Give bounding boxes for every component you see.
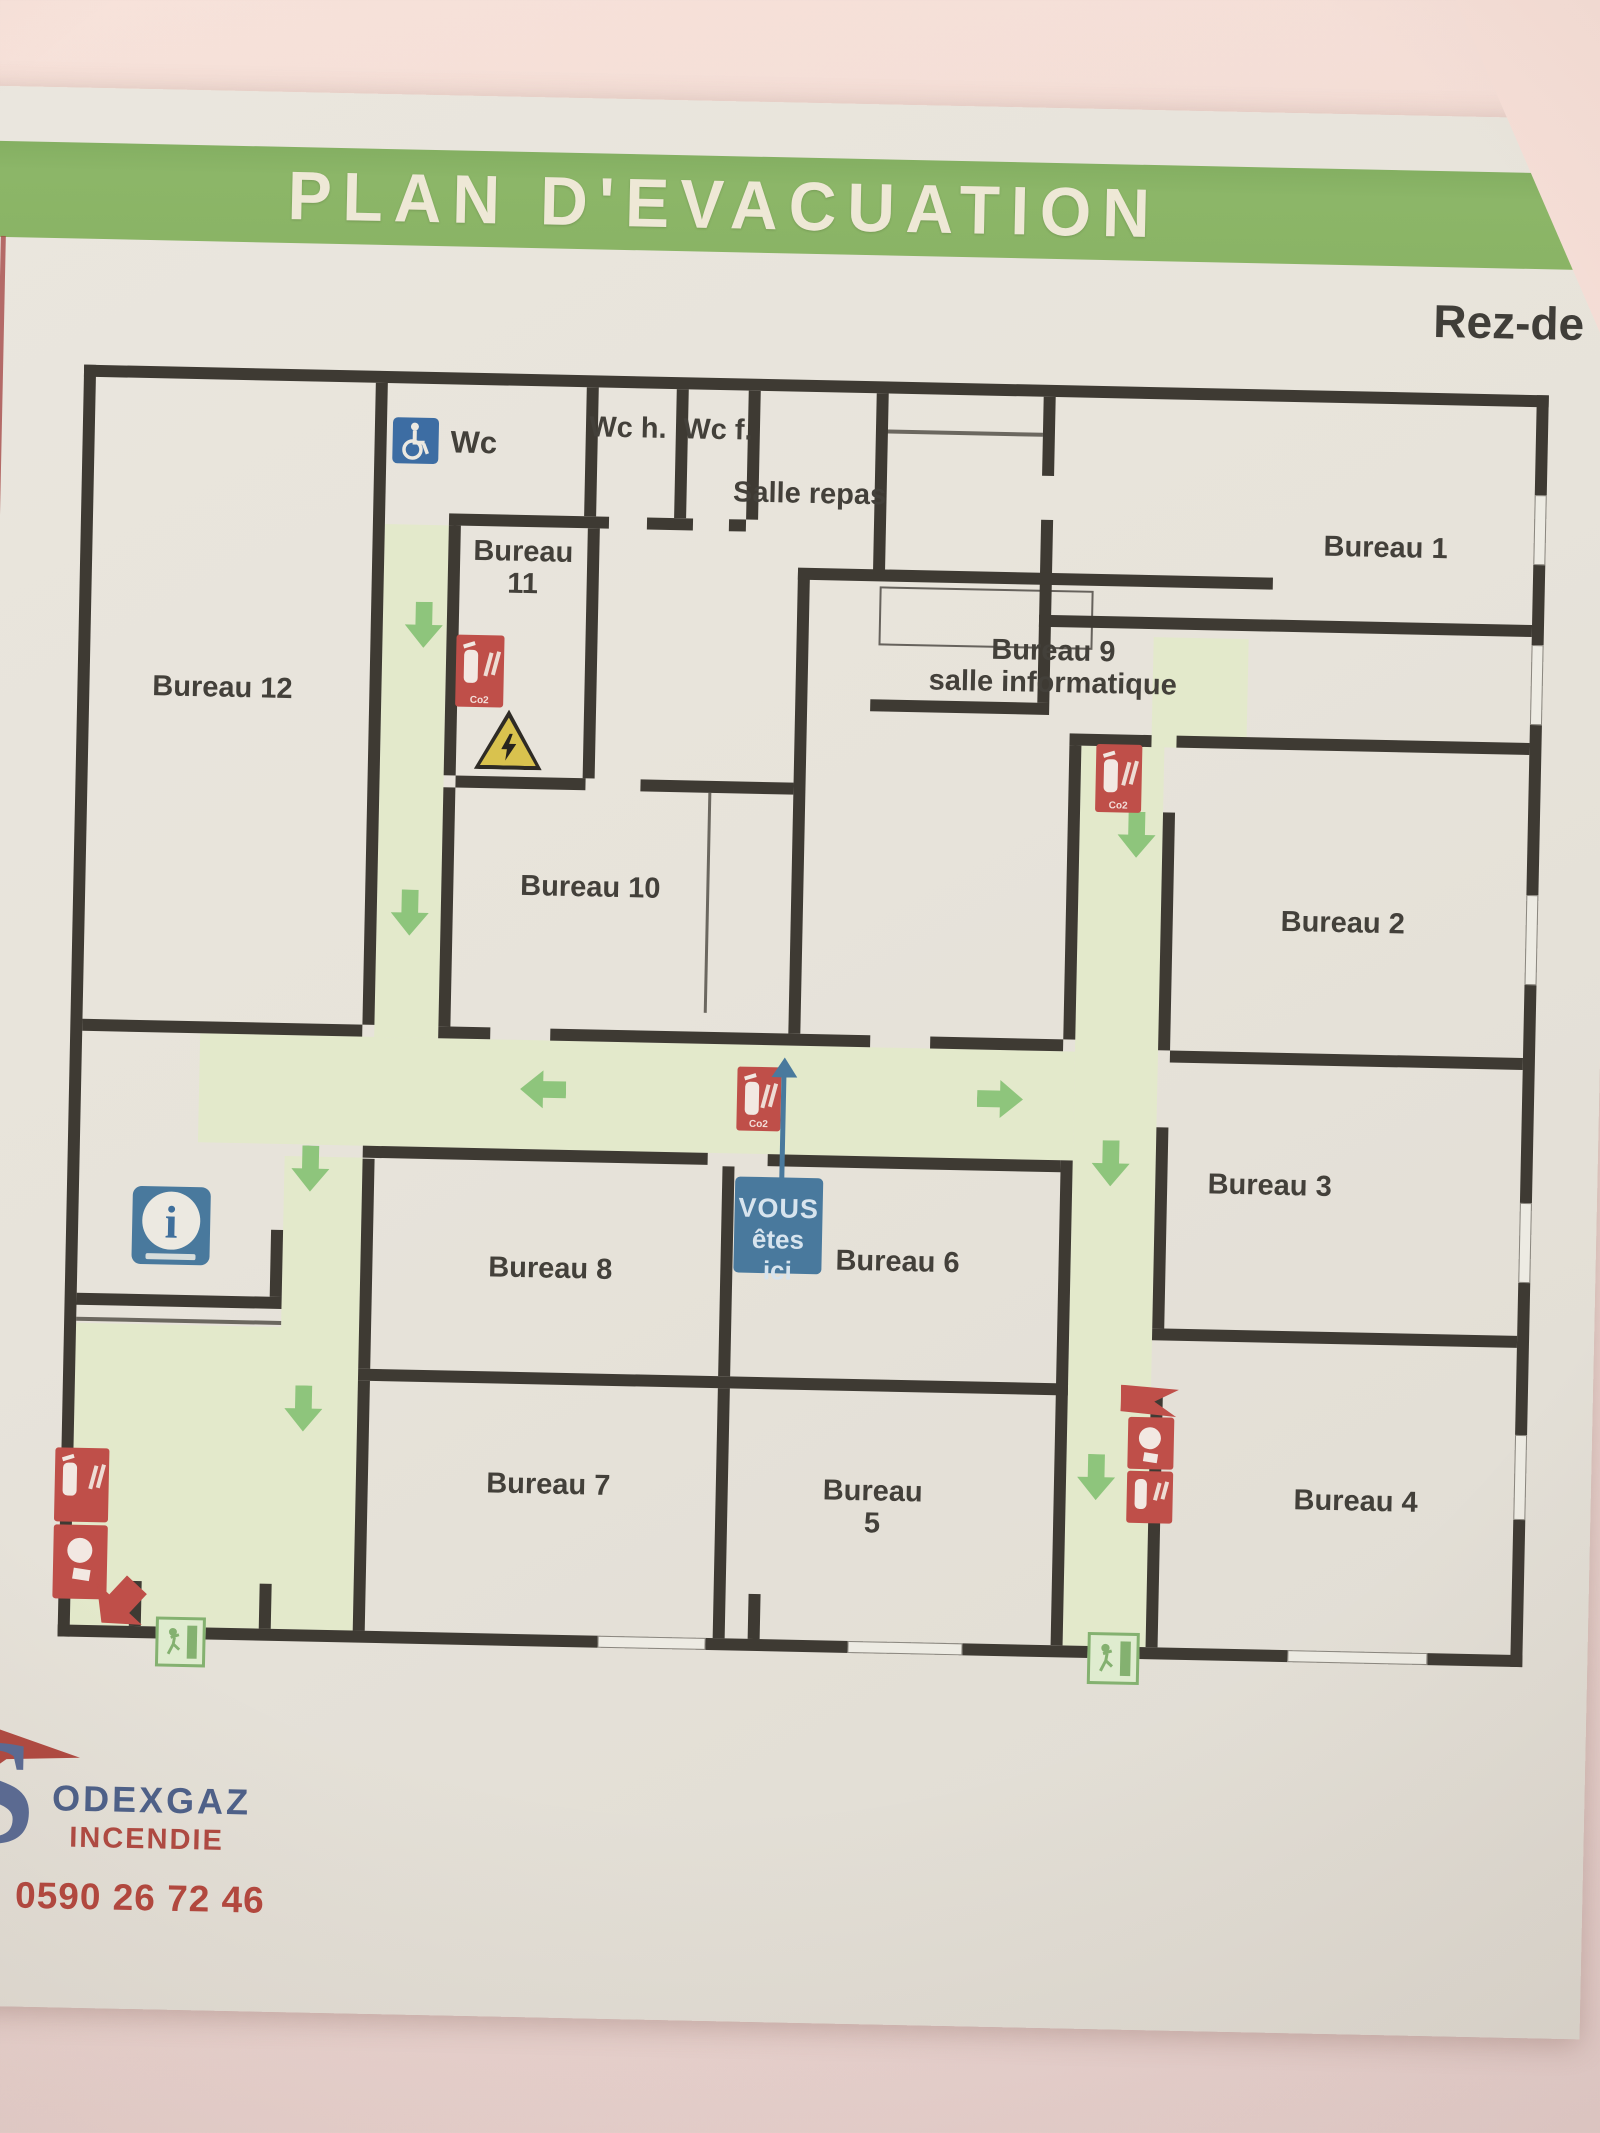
logo-phone: Tél: 0590 26 72 46 [0, 1873, 265, 1922]
company-logo: S ODEXGAZ INCENDIE Tél: 0590 26 72 46 [0, 1723, 374, 1992]
room-label-bureau-1: Bureau 1 [1285, 530, 1486, 567]
evacuation-route [198, 1033, 1075, 1160]
wall [84, 365, 1549, 408]
window [1518, 1203, 1532, 1283]
wall [584, 387, 599, 516]
fire-extinguisher-icon: Co2 [455, 635, 504, 708]
fire-extinguisher-icon: Co2 [1095, 744, 1142, 813]
evacuation-route [281, 1156, 363, 1349]
room-label-salle-repas: Salle repas [729, 476, 890, 512]
information-point-icon: i [131, 1186, 211, 1266]
window [1513, 1435, 1527, 1520]
room-label-bureau-6: Bureau 6 [827, 1244, 968, 1279]
window [1524, 895, 1538, 985]
photo-of-evacuation-plan: { "header": { "title": "PLAN D'EVACUATIO… [0, 0, 1600, 2133]
wall [788, 570, 810, 1034]
floor-label: Rez-de [1433, 294, 1585, 351]
floor-plan: Bureau 12 Wc Wc h. Wc f. Salle repas Bur… [58, 365, 1549, 1667]
window [1530, 645, 1544, 725]
evacuation-plan-poster: PLAN D'EVACUATION Rez-de Bureau 12 Wc Wc… [0, 85, 1600, 2039]
wall [647, 517, 693, 530]
window [1287, 1650, 1427, 1665]
wall [1152, 1328, 1517, 1348]
wall [729, 519, 746, 531]
wall [259, 1584, 272, 1629]
wall [358, 1369, 1068, 1396]
emergency-exit-icon [1087, 1632, 1140, 1685]
logo-division: INCENDIE [69, 1822, 224, 1858]
wall [1176, 736, 1529, 755]
wall [748, 1594, 761, 1639]
wall [1039, 615, 1532, 637]
evacuation-route [70, 1323, 359, 1631]
fire-extinguisher-icon [54, 1447, 110, 1522]
room-label-bureau-4: Bureau 4 [1255, 1483, 1456, 1520]
room-label-bureau-5: Bureau 5 [812, 1474, 933, 1541]
window [847, 1641, 962, 1655]
wall [1170, 1051, 1523, 1070]
room-label-bureau-10: Bureau 10 [470, 869, 711, 906]
room-label-bureau-9: Bureau 9salle informatique [907, 632, 1198, 703]
room-label-bureau-2: Bureau 2 [1242, 905, 1443, 942]
emergency-exit-icon [155, 1616, 206, 1667]
room-label-bureau-3: Bureau 3 [1167, 1168, 1373, 1205]
wheelchair-icon [392, 417, 439, 464]
manual-fire-alarm-icon [1127, 1417, 1174, 1470]
wall [76, 1293, 281, 1309]
logo-company-name: ODEXGAZ [52, 1777, 252, 1823]
wall [870, 699, 1049, 715]
room-label-bureau-8: Bureau 8 [445, 1250, 656, 1287]
room-label-wc-h: Wc h. [578, 411, 679, 446]
logo-initial: S [0, 1705, 37, 1879]
page-title: PLAN D'EVACUATION [0, 138, 1600, 262]
room-label-bureau-12: Bureau 12 [87, 669, 358, 707]
title-band: PLAN D'EVACUATION [0, 140, 1600, 271]
room-label-bureau-11: Bureau11 [447, 534, 598, 602]
evacuation-route [374, 524, 449, 1038]
window [1533, 495, 1546, 565]
poster-red-border [0, 236, 6, 1856]
room-label-bureau-7: Bureau 7 [445, 1466, 651, 1503]
room-label-wc-f: Wc f. [678, 413, 759, 447]
electrical-hazard-icon [474, 709, 543, 770]
wall [798, 568, 1273, 590]
wall [449, 513, 609, 528]
wall [1042, 397, 1056, 476]
wall [674, 389, 689, 518]
window [597, 1636, 705, 1650]
wall [640, 779, 793, 794]
wall [455, 776, 585, 791]
wall [270, 1230, 283, 1297]
wall [438, 1026, 490, 1039]
wall [718, 1166, 734, 1376]
room-label-wc-handicap: Wc [450, 424, 497, 461]
fire-extinguisher-icon [1126, 1471, 1173, 1524]
wall [713, 1388, 730, 1638]
you-are-here-marker: VOUS êtes ici [733, 1176, 823, 1274]
partition-line [885, 429, 1043, 436]
